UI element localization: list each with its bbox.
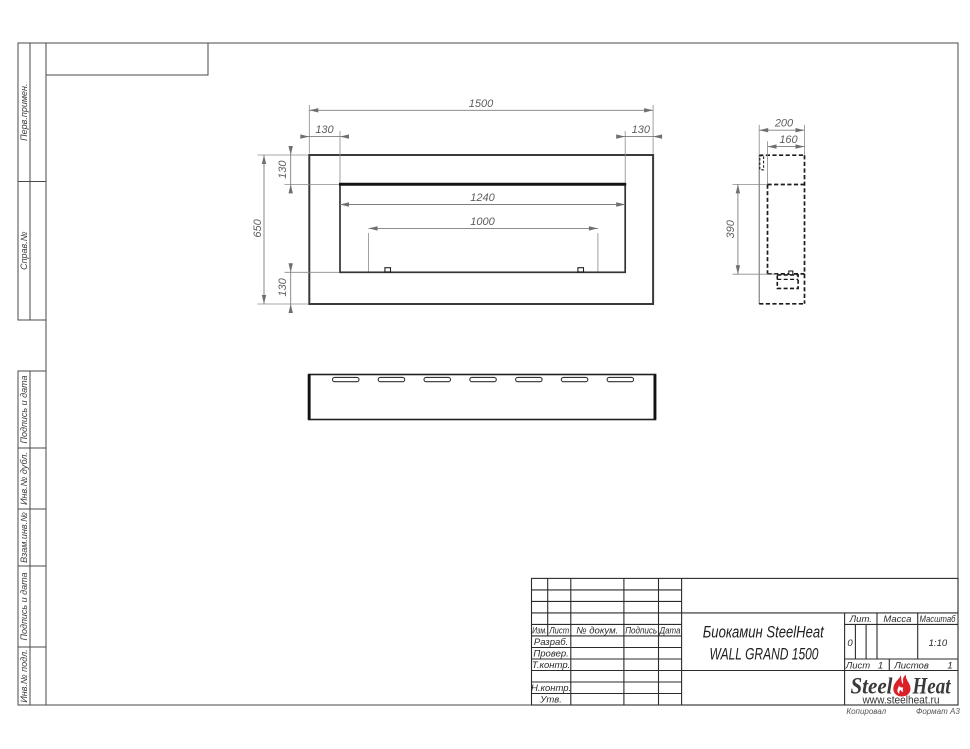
svg-text:1240: 1240 [470, 192, 495, 204]
svg-text:www.steelheat.ru: www.steelheat.ru [862, 694, 940, 706]
svg-text:130: 130 [632, 124, 651, 136]
svg-text:1000: 1000 [470, 216, 495, 228]
svg-text:Провер.: Провер. [533, 649, 568, 660]
svg-text:Листов: Листов [893, 660, 929, 671]
svg-text:Масштаб: Масштаб [920, 614, 957, 625]
svg-text:130: 130 [277, 160, 289, 179]
svg-text:160: 160 [779, 134, 798, 146]
svg-text:200: 200 [774, 118, 794, 130]
svg-text:Подпись и дата: Подпись и дата [19, 572, 29, 640]
svg-text:№ докум.: № докум. [576, 626, 618, 637]
svg-text:Подпись и дата: Подпись и дата [19, 375, 29, 443]
svg-text:1: 1 [878, 660, 883, 671]
svg-text:Подпись: Подпись [625, 626, 657, 637]
svg-text:130: 130 [277, 277, 289, 296]
svg-text:Дата: Дата [659, 626, 681, 637]
svg-text:650: 650 [252, 218, 264, 237]
svg-text:Лит.: Лит. [849, 614, 872, 625]
svg-text:Утв.: Утв. [539, 695, 562, 706]
svg-text:0: 0 [847, 638, 853, 649]
svg-text:Масса: Масса [883, 614, 911, 625]
svg-text:1500: 1500 [469, 98, 494, 110]
svg-text:WALL GRAND 1500: WALL GRAND 1500 [710, 646, 820, 664]
svg-text:Н.контр.: Н.контр. [531, 683, 571, 694]
svg-text:Инв.№ подл.: Инв.№ подл. [19, 649, 29, 702]
svg-text:390: 390 [725, 219, 737, 238]
svg-text:1:10: 1:10 [929, 638, 948, 649]
svg-text:Перв.примен.: Перв.примен. [19, 84, 29, 141]
svg-text:Взам.инв.№: Взам.инв.№ [19, 512, 29, 563]
svg-text:Разраб.: Разраб. [534, 637, 568, 648]
svg-text:Формат А3: Формат А3 [916, 707, 960, 716]
svg-text:Справ.№: Справ.№ [19, 231, 29, 270]
svg-text:130: 130 [315, 124, 334, 136]
svg-text:Биокамин SteelHeat: Биокамин SteelHeat [703, 624, 825, 642]
svg-text:Лист: Лист [548, 626, 569, 637]
svg-text:Копировал: Копировал [846, 707, 886, 716]
svg-text:Изм.: Изм. [532, 626, 547, 637]
svg-text:Т.контр.: Т.контр. [532, 660, 570, 671]
svg-text:Лист: Лист [845, 660, 871, 671]
svg-text:Инв.№ дубл.: Инв.№ дубл. [19, 452, 29, 505]
svg-text:1: 1 [947, 660, 952, 671]
